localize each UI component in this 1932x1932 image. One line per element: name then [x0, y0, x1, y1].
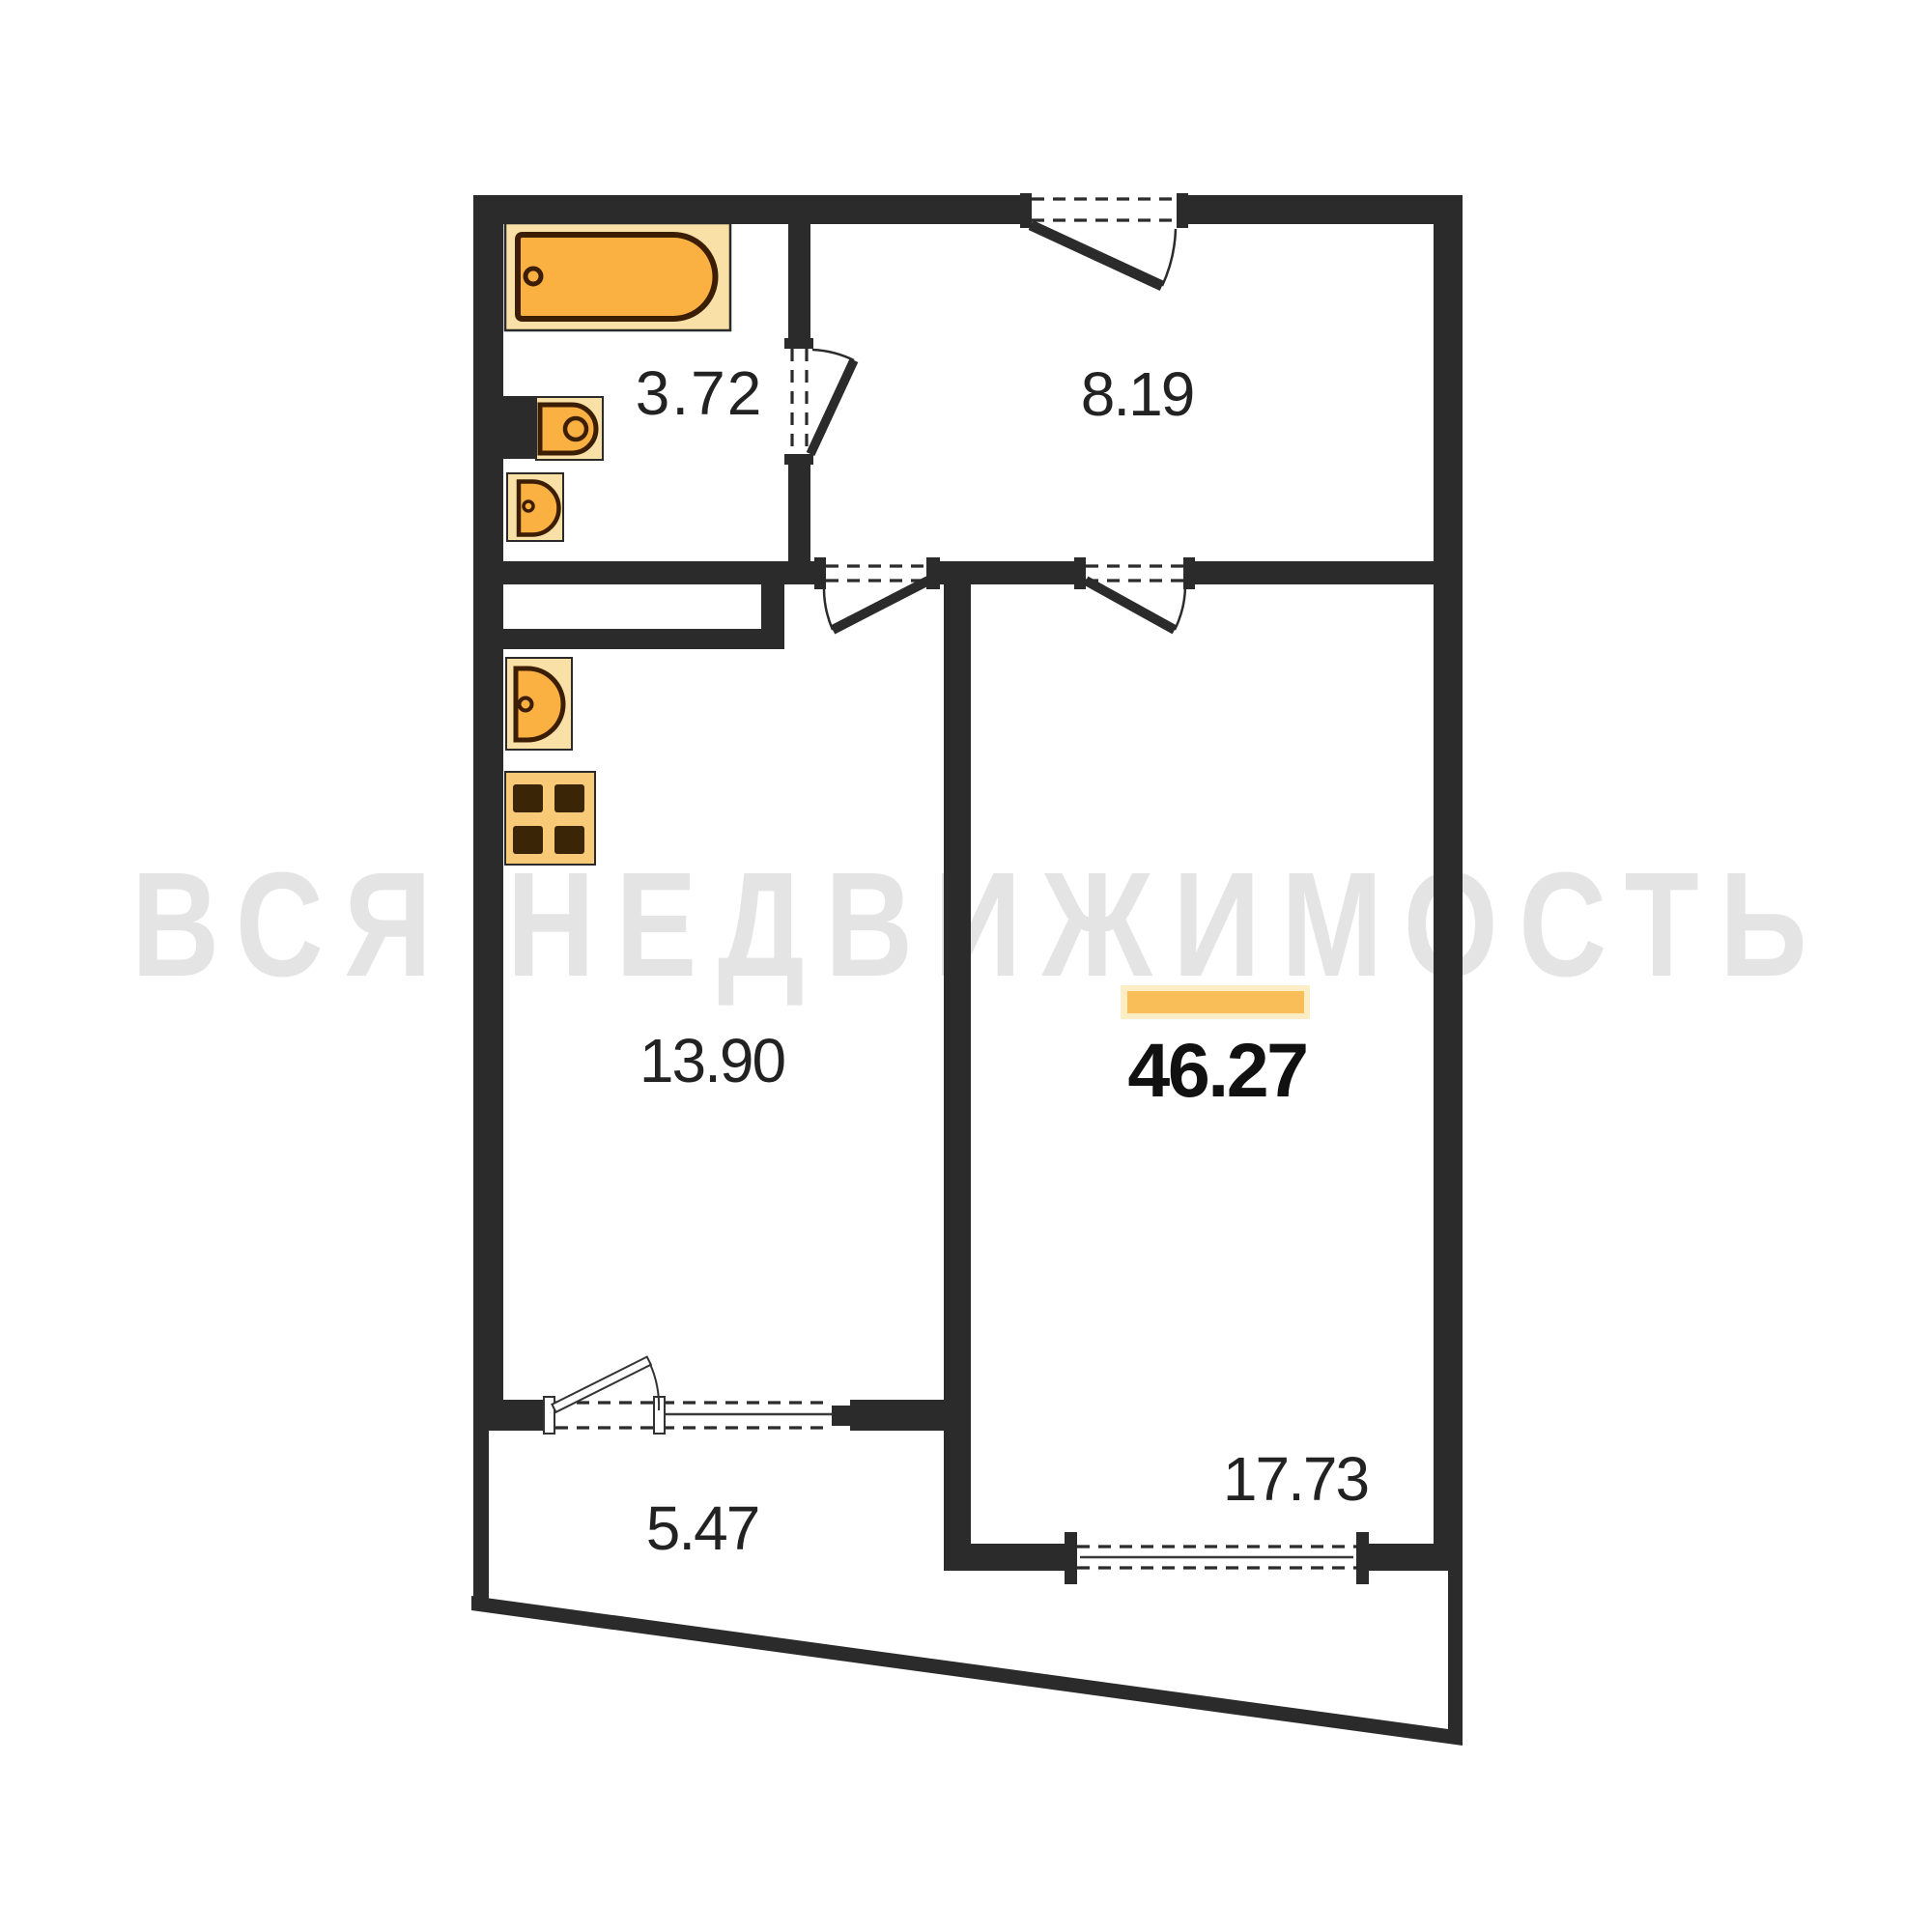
svg-text:13.90: 13.90 — [639, 1026, 785, 1095]
svg-text:5.47: 5.47 — [646, 1493, 759, 1563]
svg-text:46.27: 46.27 — [1127, 1027, 1306, 1113]
svg-text:17.73: 17.73 — [1223, 1444, 1368, 1514]
svg-text:ВСЯ НЕДВИЖИМОСТЬ: ВСЯ НЕДВИЖИМОСТЬ — [131, 841, 1828, 1008]
svg-text:8.19: 8.19 — [1081, 359, 1194, 429]
svg-text:3.72: 3.72 — [636, 358, 764, 428]
